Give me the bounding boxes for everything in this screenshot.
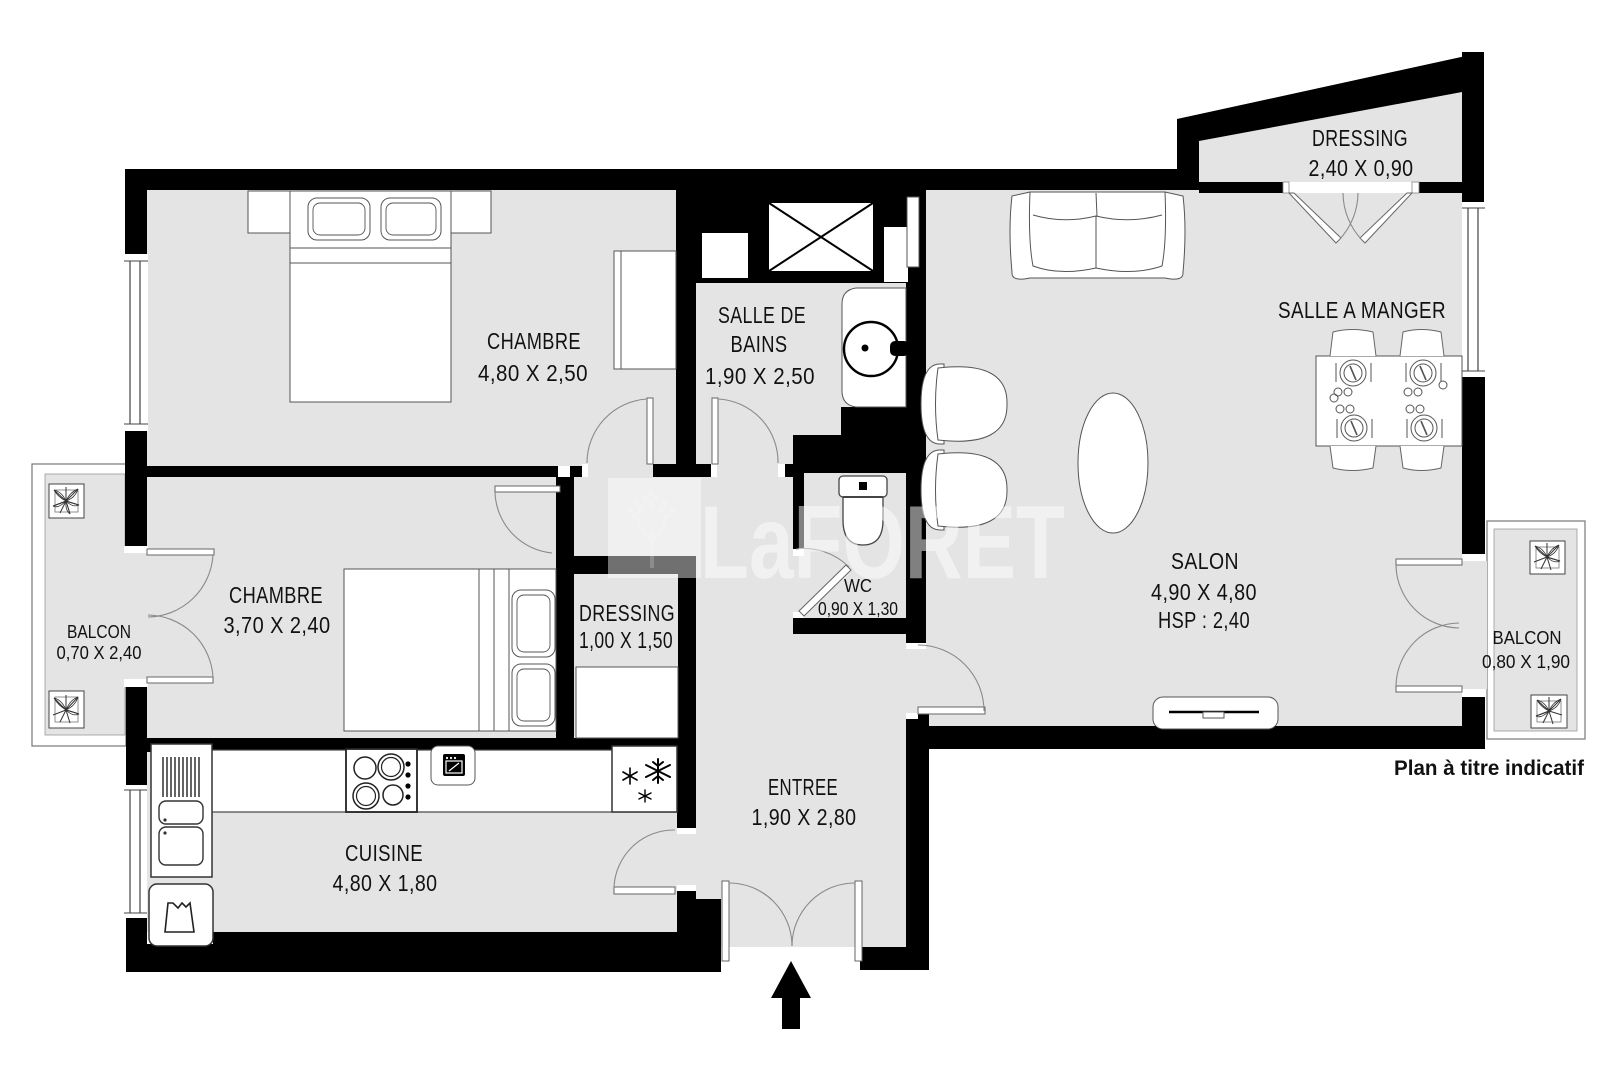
svg-text:BALCON: BALCON bbox=[67, 622, 131, 642]
svg-text:BALCON: BALCON bbox=[1493, 628, 1562, 648]
svg-text:ENTREE: ENTREE bbox=[768, 774, 838, 800]
svg-text:4,80 X 2,50: 4,80 X 2,50 bbox=[478, 360, 588, 386]
svg-text:DRESSING: DRESSING bbox=[1312, 125, 1408, 151]
svg-text:SALLE DE: SALLE DE bbox=[718, 302, 806, 328]
svg-text:SALLE A MANGER: SALLE A MANGER bbox=[1278, 297, 1446, 323]
svg-text:CUISINE: CUISINE bbox=[345, 840, 423, 866]
svg-text:1,90 X 2,80: 1,90 X 2,80 bbox=[752, 804, 857, 830]
svg-text:1,00 X 1,50: 1,00 X 1,50 bbox=[579, 627, 673, 653]
svg-text:SALON: SALON bbox=[1171, 548, 1239, 574]
svg-text:0,70 X 2,40: 0,70 X 2,40 bbox=[57, 643, 142, 663]
svg-text:CHAMBRE: CHAMBRE bbox=[487, 328, 581, 354]
svg-text:LaFORET: LaFORET bbox=[700, 485, 1065, 601]
svg-text:4,80 X 1,80: 4,80 X 1,80 bbox=[333, 870, 438, 896]
svg-text:2,40 X 0,90: 2,40 X 0,90 bbox=[1309, 155, 1414, 181]
svg-text:0,80 X 1,90: 0,80 X 1,90 bbox=[1482, 652, 1570, 672]
svg-text:3,70 X 2,40: 3,70 X 2,40 bbox=[224, 612, 331, 638]
svg-text:0,90 X 1,30: 0,90 X 1,30 bbox=[818, 599, 898, 619]
svg-text:HSP : 2,40: HSP : 2,40 bbox=[1158, 607, 1250, 633]
svg-text:BAINS: BAINS bbox=[731, 331, 788, 357]
svg-text:Plan à titre indicatif: Plan à titre indicatif bbox=[1394, 757, 1585, 780]
svg-text:1,90 X 2,50: 1,90 X 2,50 bbox=[705, 363, 815, 389]
svg-text:WC: WC bbox=[844, 576, 872, 596]
svg-text:4,90 X 4,80: 4,90 X 4,80 bbox=[1151, 579, 1257, 605]
svg-text:DRESSING: DRESSING bbox=[579, 600, 675, 626]
svg-text:CHAMBRE: CHAMBRE bbox=[229, 582, 323, 608]
